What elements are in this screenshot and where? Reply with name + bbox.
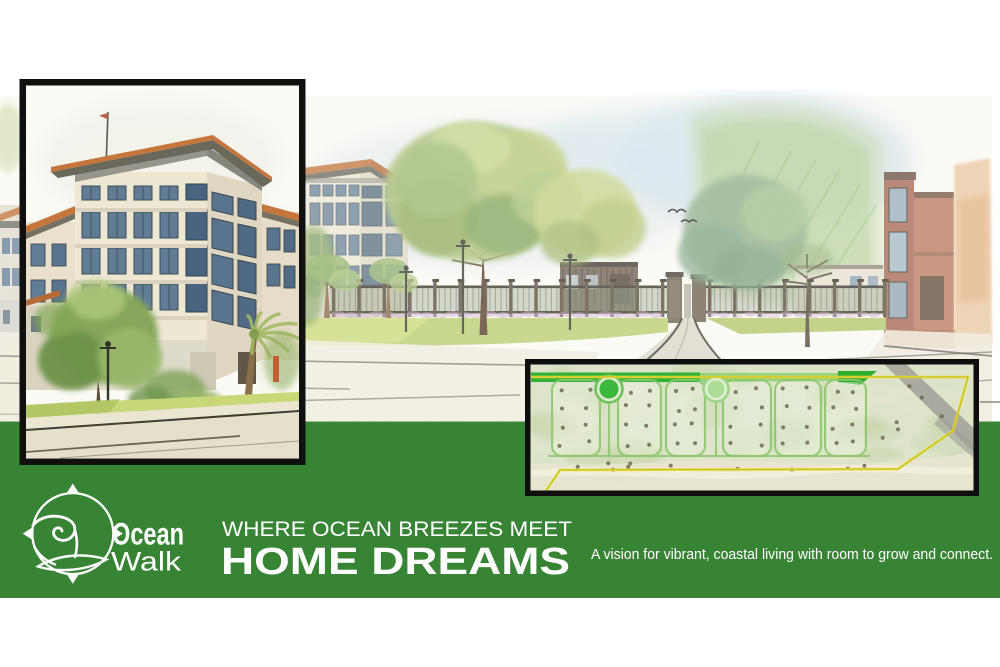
svg-text:Walk: Walk <box>111 547 182 577</box>
svg-text:WHERE OCEAN BREEZES MEET: WHERE OCEAN BREEZES MEET <box>222 517 572 541</box>
svg-text:A vision for vibrant, coastal: A vision for vibrant, coastal living wit… <box>591 547 993 563</box>
svg-text:HOME DREAMS: HOME DREAMS <box>221 541 570 583</box>
